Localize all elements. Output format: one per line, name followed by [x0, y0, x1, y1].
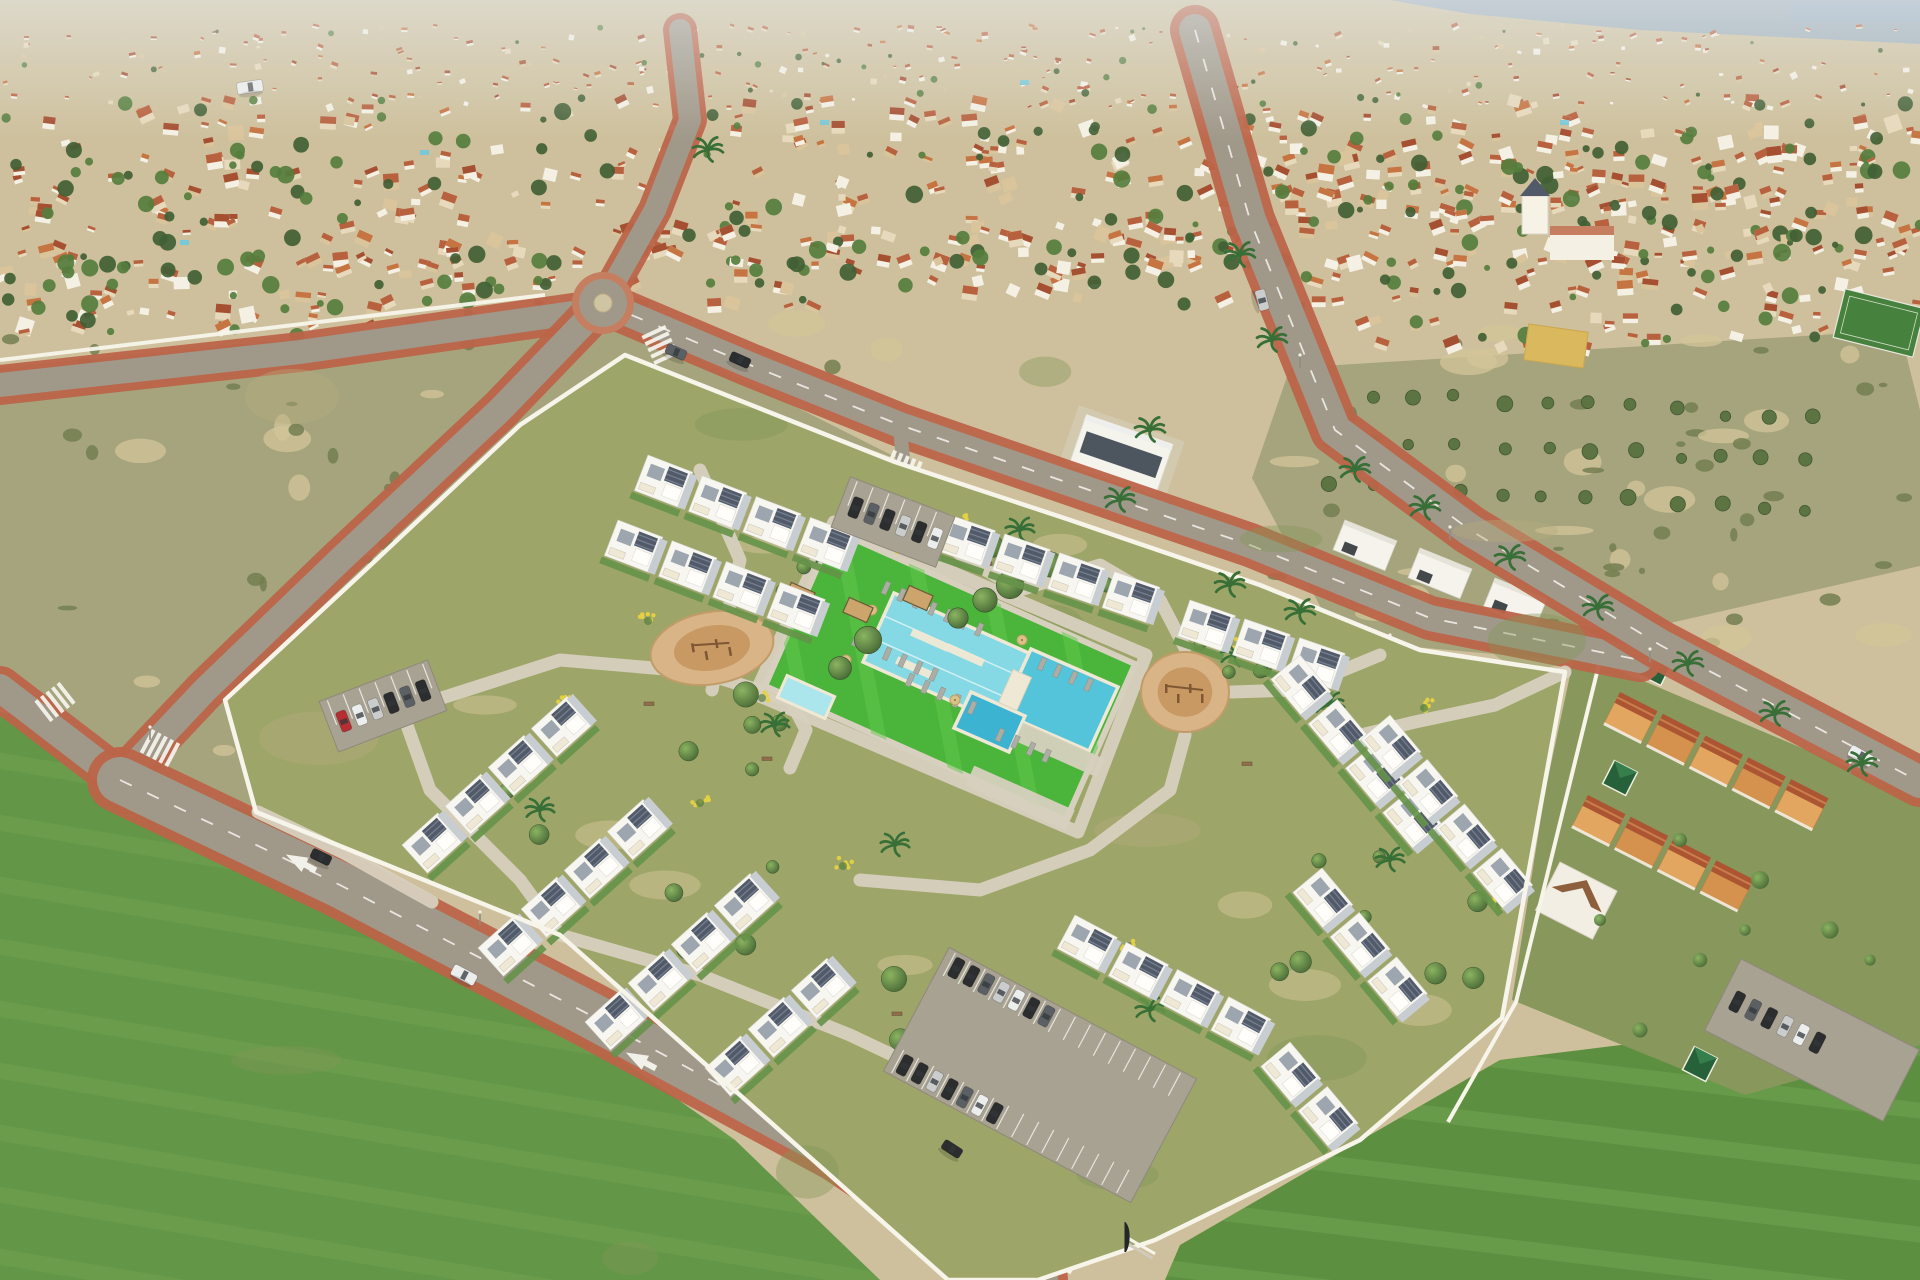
warm-light	[0, 0, 1920, 1280]
aerial-photo	[0, 0, 1920, 1280]
atmosphere-layer	[0, 0, 1920, 1280]
aerial-scene	[0, 0, 1920, 1280]
